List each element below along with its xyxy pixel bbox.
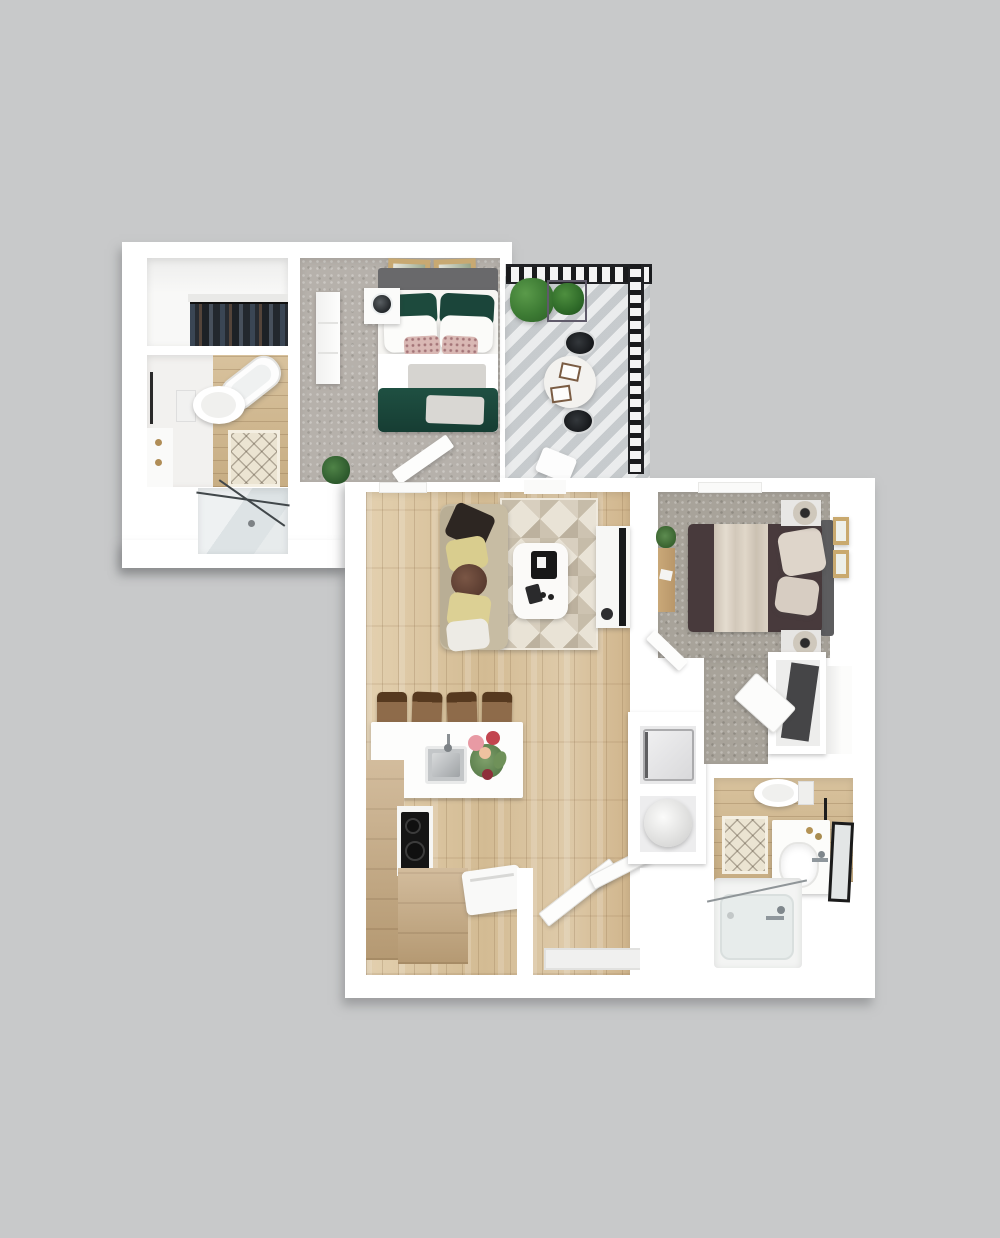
vanity-knob-2 [815, 833, 822, 840]
upper-duvet-throw [426, 395, 485, 425]
cooktop-burner-2 [405, 841, 425, 861]
bed-pillow-cream-2 [774, 575, 821, 616]
upper-nightstand-speaker [371, 293, 393, 315]
bedroom-frame-2-art [836, 554, 846, 574]
upper-plant [322, 456, 350, 484]
living-bedroom-wall [630, 492, 658, 714]
bedroom-desk-plant [656, 526, 676, 548]
entry-threshold [544, 948, 642, 970]
vanity-knob-1 [806, 827, 813, 834]
flower-red [486, 731, 500, 745]
linen-alcove [826, 666, 852, 754]
bathroom-rug [722, 816, 768, 874]
bathroom-toilet-tank [798, 781, 814, 805]
flower-peach [479, 747, 491, 759]
bedroom-window-sill [698, 482, 762, 493]
closet-shelf-edge [188, 294, 288, 302]
kitchen-bottom-cabinets [398, 868, 468, 964]
entry-wall-right [640, 868, 660, 975]
upper-towel-bar [150, 372, 153, 424]
coffee-table-dot-1 [540, 592, 546, 598]
living-window-sill [379, 482, 427, 493]
bedroom-frame-1-art [836, 521, 846, 541]
upper-vanity-knob-2 [155, 459, 162, 466]
floor-plan-render [0, 0, 1000, 1238]
bed-cream-drape [714, 524, 768, 632]
upper-vanity-knob-1 [155, 439, 162, 446]
balcony-door-threshold [524, 480, 566, 494]
washer [643, 729, 694, 781]
balcony-chair-bottom [562, 408, 594, 434]
tv-screen [619, 528, 626, 626]
balcony-railing-right [628, 264, 644, 474]
bathroom-faucet [812, 858, 828, 862]
lamp-top [793, 501, 817, 525]
upper-throw-gray [408, 364, 486, 390]
upper-vanity-strip [147, 428, 173, 487]
coffee-table-dot-2 [548, 594, 554, 600]
upper-wardrobe-line-2 [318, 352, 338, 354]
upper-bath-rug [228, 430, 280, 487]
kitchen-faucet-head [444, 744, 452, 752]
entry-wall-left [517, 868, 533, 975]
shower-drain [248, 520, 255, 527]
bed-pillow-cream-1 [777, 527, 828, 578]
bedroom-desk-item [659, 569, 673, 581]
bathtub-faucet [766, 916, 784, 920]
bathtub-drain [727, 912, 734, 919]
closet-hanging-clothes [190, 302, 288, 346]
fridge [461, 864, 525, 916]
tv-speaker [601, 608, 613, 620]
bathroom-toilet-seat [762, 784, 794, 802]
coffee-table-tray-item [537, 557, 546, 568]
upper-toilet-seat [201, 392, 236, 418]
bed-headboard [820, 520, 834, 636]
flower-dark-red [482, 769, 493, 780]
balcony-plant-2 [552, 283, 584, 315]
upper-wardrobe [316, 292, 340, 384]
balcony-placemat-2 [550, 385, 572, 404]
sofa-pillow-white [446, 618, 491, 652]
upper-wardrobe-line-1 [318, 322, 338, 324]
bathtub-inner [720, 894, 794, 960]
balcony-chair-top [564, 330, 596, 356]
cooktop-burner-1 [405, 818, 421, 834]
kitchen-sink-basin [432, 753, 460, 777]
bathtub-faucet-dot [777, 906, 785, 914]
washer-door-edge [645, 732, 648, 778]
bathroom-faucet-dot [818, 851, 825, 858]
dryer [644, 799, 692, 847]
bathroom-mirror [828, 821, 854, 902]
